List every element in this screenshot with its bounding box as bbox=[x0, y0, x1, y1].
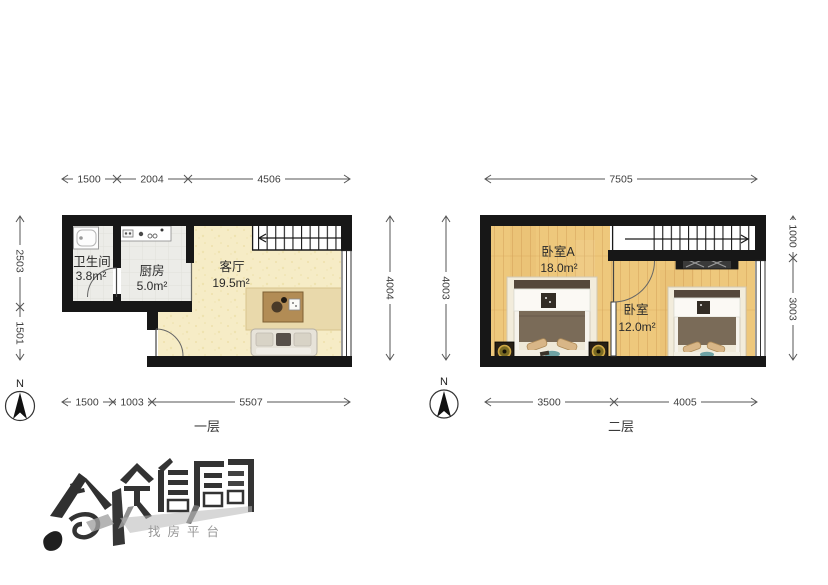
dim-f2-bottom-2: 4005 bbox=[673, 397, 697, 409]
floor2-plan: 卧室A 18.0m² 卧室 12.0m² bbox=[480, 215, 766, 367]
bathroom-area: 3.8m² bbox=[76, 269, 107, 283]
kitchen-counter bbox=[119, 226, 171, 241]
dim-f2-left-1: 4003 bbox=[440, 276, 452, 300]
bed-blanket bbox=[678, 317, 736, 345]
dim-f1-left-2: 1501 bbox=[14, 321, 26, 345]
watermark-slogan: 找房平台 bbox=[148, 524, 226, 539]
floor2-label: 二层 bbox=[608, 419, 634, 434]
dim-f2-top-1: 7505 bbox=[609, 174, 633, 186]
north-label-floor2: N bbox=[440, 376, 448, 388]
floor1-plan: 卫生间 3.8m² 厨房 5.0m² 客厅 19.5m² bbox=[62, 215, 352, 367]
bed-pillow bbox=[541, 293, 556, 308]
dim-f2-right-1: 1000 bbox=[787, 224, 799, 248]
logo-glyphs bbox=[118, 458, 254, 533]
dim-f1-bottom-3: 5507 bbox=[239, 397, 263, 409]
floorplan-svg: 卫生间 3.8m² 厨房 5.0m² 客厅 19.5m² 1500 2004 4… bbox=[0, 0, 828, 585]
bed-pillow bbox=[697, 301, 710, 314]
kitchen-label: 厨房 bbox=[139, 263, 164, 278]
floorplan-image: 卫生间 3.8m² 厨房 5.0m² 客厅 19.5m² 1500 2004 4… bbox=[0, 0, 828, 585]
stove-icon bbox=[123, 230, 133, 237]
floor1-right-dimension: 4004 bbox=[384, 216, 397, 360]
floor2-left-dimension: 4003 bbox=[440, 216, 453, 360]
floor2-window bbox=[755, 260, 766, 356]
floor1-stairs bbox=[252, 226, 346, 250]
dim-f1-bottom-2: 1003 bbox=[120, 397, 144, 409]
bathtub bbox=[74, 227, 99, 249]
bedroomB-area: 12.0m² bbox=[618, 320, 655, 334]
bedroom-partition bbox=[611, 302, 616, 356]
floor1-window bbox=[341, 250, 352, 356]
bedroomA-furniture bbox=[495, 277, 608, 361]
dim-f1-bottom-1: 1500 bbox=[75, 397, 99, 409]
watermark-logo: 找房平台 bbox=[43, 458, 254, 551]
floor1-label: 一层 bbox=[194, 419, 220, 434]
dim-f2-bottom-1: 3500 bbox=[537, 397, 561, 409]
living-room-label: 客厅 bbox=[219, 259, 244, 274]
bed-headboard bbox=[674, 290, 740, 298]
floor1-top-dimension: 1500 2004 4506 bbox=[62, 173, 350, 186]
floor2-right-dimension: 1000 3003 bbox=[787, 216, 800, 360]
logo-house-mark bbox=[43, 473, 125, 551]
bedroomA-label: 卧室A bbox=[541, 244, 575, 259]
bed-headboard bbox=[514, 280, 590, 289]
floor2-top-dimension: 7505 bbox=[485, 173, 757, 186]
compass-icon-floor2: N bbox=[430, 376, 458, 418]
floor1-left-dimension: 2503 1501 bbox=[14, 216, 27, 360]
bedroomA-area: 18.0m² bbox=[540, 261, 577, 275]
north-arrow-icon bbox=[13, 393, 27, 420]
dim-f1-top-1: 1500 bbox=[77, 174, 101, 186]
floor2-bottom-dimension: 3500 4005 bbox=[485, 396, 757, 409]
bathroom-label: 卫生间 bbox=[73, 255, 111, 269]
sofa bbox=[251, 329, 317, 356]
sink-icon bbox=[139, 232, 143, 236]
dim-f1-left-1: 2503 bbox=[14, 249, 26, 273]
kitchen-area: 5.0m² bbox=[137, 279, 168, 293]
bedroomB-furniture bbox=[668, 287, 746, 357]
bedroomB-label: 卧室 bbox=[623, 302, 648, 317]
living-room-area: 19.5m² bbox=[212, 276, 249, 290]
floor2-stairs bbox=[612, 226, 755, 250]
dim-f1-top-3: 4506 bbox=[257, 174, 281, 186]
north-label-floor1: N bbox=[16, 378, 24, 390]
north-arrow-icon bbox=[437, 391, 451, 417]
dim-f1-top-2: 2004 bbox=[140, 174, 164, 186]
dim-f2-right-2: 3003 bbox=[787, 297, 799, 321]
floor1-bottom-dimension: 1500 1003 5507 bbox=[62, 396, 350, 409]
dim-f1-right-1: 4004 bbox=[384, 276, 396, 300]
compass-icon-floor1: N bbox=[6, 378, 35, 421]
